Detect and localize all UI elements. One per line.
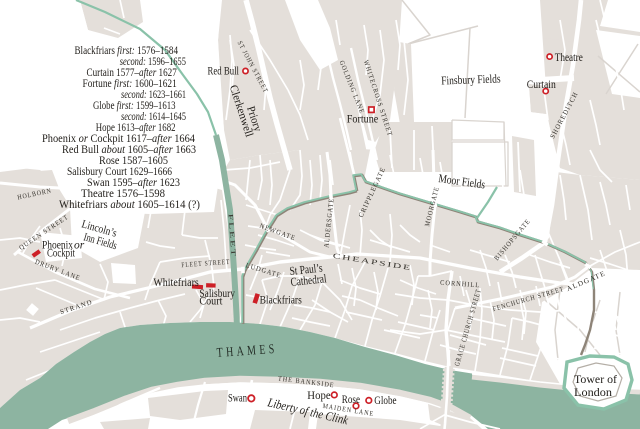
svg-text:Tower of: Tower of [574,374,617,386]
svg-text:Rose: Rose [342,392,360,406]
svg-text:Court: Court [199,294,223,308]
svg-text:Whitefriars about 1605–1614 (?: Whitefriars about 1605–1614 (?) [59,197,200,211]
svg-text:Cockpit: Cockpit [47,248,76,260]
svg-text:Whitefriars: Whitefriars [153,275,199,289]
svg-text:Blackfriars: Blackfriars [260,292,302,306]
svg-text:Red Bull: Red Bull [208,64,240,78]
svg-text:Swan: Swan [228,391,247,405]
svg-text:Globe: Globe [374,393,396,407]
svg-text:Finsbury Fields: Finsbury Fields [441,71,501,87]
svg-text:Hope: Hope [307,388,330,402]
svg-text:Fortune: Fortune [347,111,379,125]
svg-text:Curtain: Curtain [527,77,556,91]
svg-text:London: London [574,387,612,399]
svg-text:Theatre: Theatre [555,50,583,64]
svg-text:or: or [74,240,85,252]
